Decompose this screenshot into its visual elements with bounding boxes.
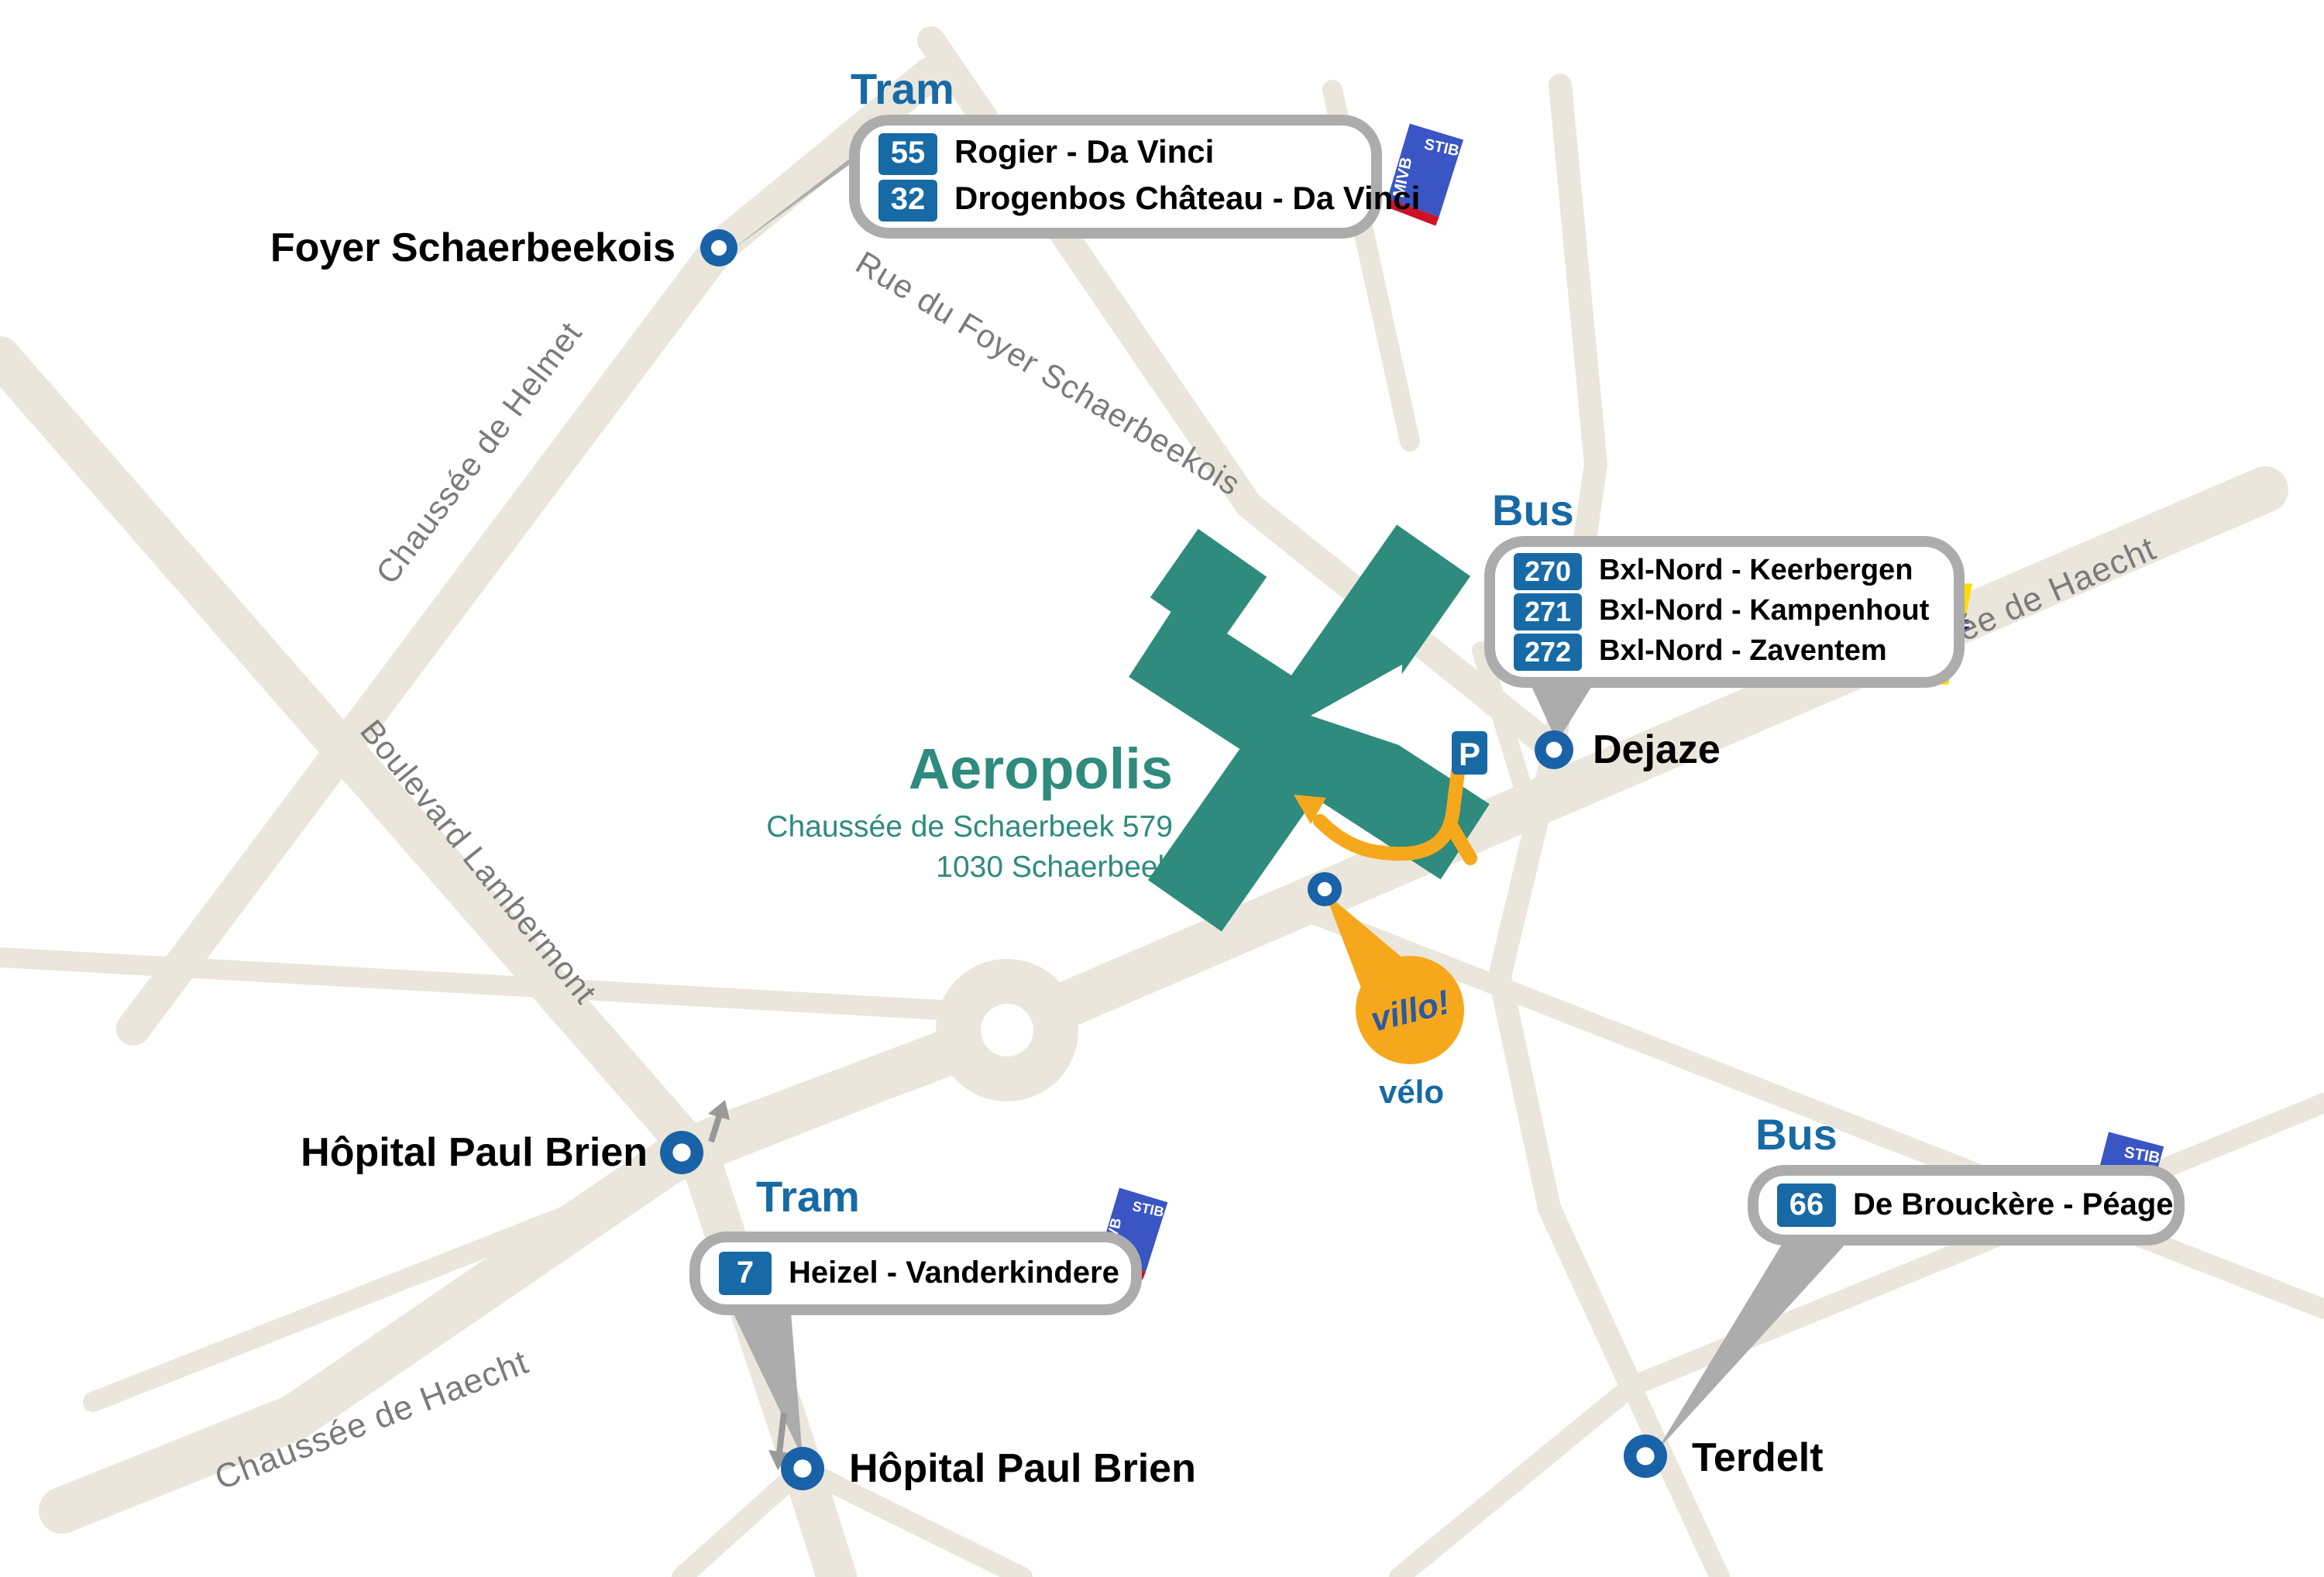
villo-station: villo! <box>1325 892 1464 1064</box>
aeropolis-building <box>1129 524 1490 931</box>
stop-label-dejaze: Dejaze <box>1593 726 1721 774</box>
building-caption: Aeropolis Chaussée de Schaerbeek 579 103… <box>766 739 1173 888</box>
callout-bus-north: 270 Bxl-Nord - Keerbergen 271 Bxl-Nord -… <box>1484 536 1965 688</box>
line-number-badge: 32 <box>878 179 937 221</box>
title-bus-north: Bus <box>1492 486 1574 536</box>
callout-tram-north: 55 Rogier - Da Vinci 32 Drogenbos Châtea… <box>849 115 1382 239</box>
stop-marker-hopital-paul-brien-north <box>660 1131 703 1174</box>
line-route: Bxl-Nord - Kampenhout <box>1599 595 1929 629</box>
stop-marker-dejaze <box>1535 730 1573 769</box>
tram-line-7: 7 Heizel - Vanderkindere <box>719 1252 1116 1295</box>
road-hopital-fork-left <box>682 1469 803 1577</box>
parking-letter: P <box>1459 736 1480 772</box>
velo-label: vélo <box>1379 1075 1444 1112</box>
callout-tram-south: 7 Heizel - Vanderkindere <box>689 1232 1142 1315</box>
stop-marker-foyer-schaerbeekois <box>700 229 737 266</box>
pointer-bus-southeast <box>1656 1239 1850 1452</box>
building-name: Aeropolis <box>766 739 1173 801</box>
line-number-badge: 55 <box>878 132 937 174</box>
line-number-badge: 271 <box>1514 593 1582 630</box>
tram-line-32: 32 Drogenbos Château - Da Vinci <box>878 179 1356 221</box>
building-address-line1: Chaussée de Schaerbeek 579 <box>766 807 1173 847</box>
title-bus-southeast: Bus <box>1755 1111 1838 1160</box>
line-number-badge: 270 <box>1514 553 1582 590</box>
title-tram-south: Tram <box>756 1173 860 1222</box>
road-terdelt-fork-left <box>1399 1386 1631 1577</box>
bus-line-270: 270 Bxl-Nord - Keerbergen <box>1514 553 1938 590</box>
line-route: Bxl-Nord - Keerbergen <box>1599 555 1913 589</box>
stop-label-foyer-schaerbeekois: Foyer Schaerbeekois <box>270 224 676 272</box>
bus-line-271: 271 Bxl-Nord - Kampenhout <box>1514 593 1938 630</box>
parking-sign: P <box>1452 731 1487 775</box>
stop-label-hopital-paul-brien-north: Hôpital Paul Brien <box>301 1129 648 1177</box>
line-number-badge: 66 <box>1777 1184 1836 1227</box>
stop-label-hopital-paul-brien-south: Hôpital Paul Brien <box>849 1445 1196 1493</box>
line-route: Bxl-Nord - Zaventem <box>1599 635 1887 669</box>
line-number-badge: 7 <box>719 1252 772 1295</box>
line-route: Heizel - Vanderkindere <box>789 1256 1119 1291</box>
stop-marker-terdelt <box>1624 1434 1667 1478</box>
line-number-badge: 272 <box>1514 634 1582 671</box>
line-route: De Brouckère - Péage <box>1853 1187 2174 1223</box>
roundabout <box>936 959 1078 1101</box>
road-terdelt-fork-right <box>1631 1386 1720 1577</box>
tram-line-55: 55 Rogier - Da Vinci <box>878 132 1356 174</box>
building-address-line2: 1030 Schaerbeek <box>766 847 1173 888</box>
access-map: villo! P STIB MIVB STIB MIVB STIB MIVB <box>0 0 2324 1577</box>
bus-line-272: 272 Bxl-Nord - Zaventem <box>1514 634 1938 671</box>
callout-bus-southeast: 66 De Brouckère - Péage <box>1748 1165 2185 1245</box>
title-tram-north: Tram <box>851 65 954 115</box>
map-stage: villo! P STIB MIVB STIB MIVB STIB MIVB <box>0 0 2324 1577</box>
line-route: Drogenbos Château - Da Vinci <box>954 181 1420 218</box>
line-route: Rogier - Da Vinci <box>954 135 1214 172</box>
stop-marker-villo <box>1308 872 1342 906</box>
stop-label-terdelt: Terdelt <box>1692 1434 1824 1482</box>
stop-marker-hopital-paul-brien-south <box>781 1447 824 1490</box>
bus-line-66: 66 De Brouckère - Péage <box>1777 1184 2158 1227</box>
